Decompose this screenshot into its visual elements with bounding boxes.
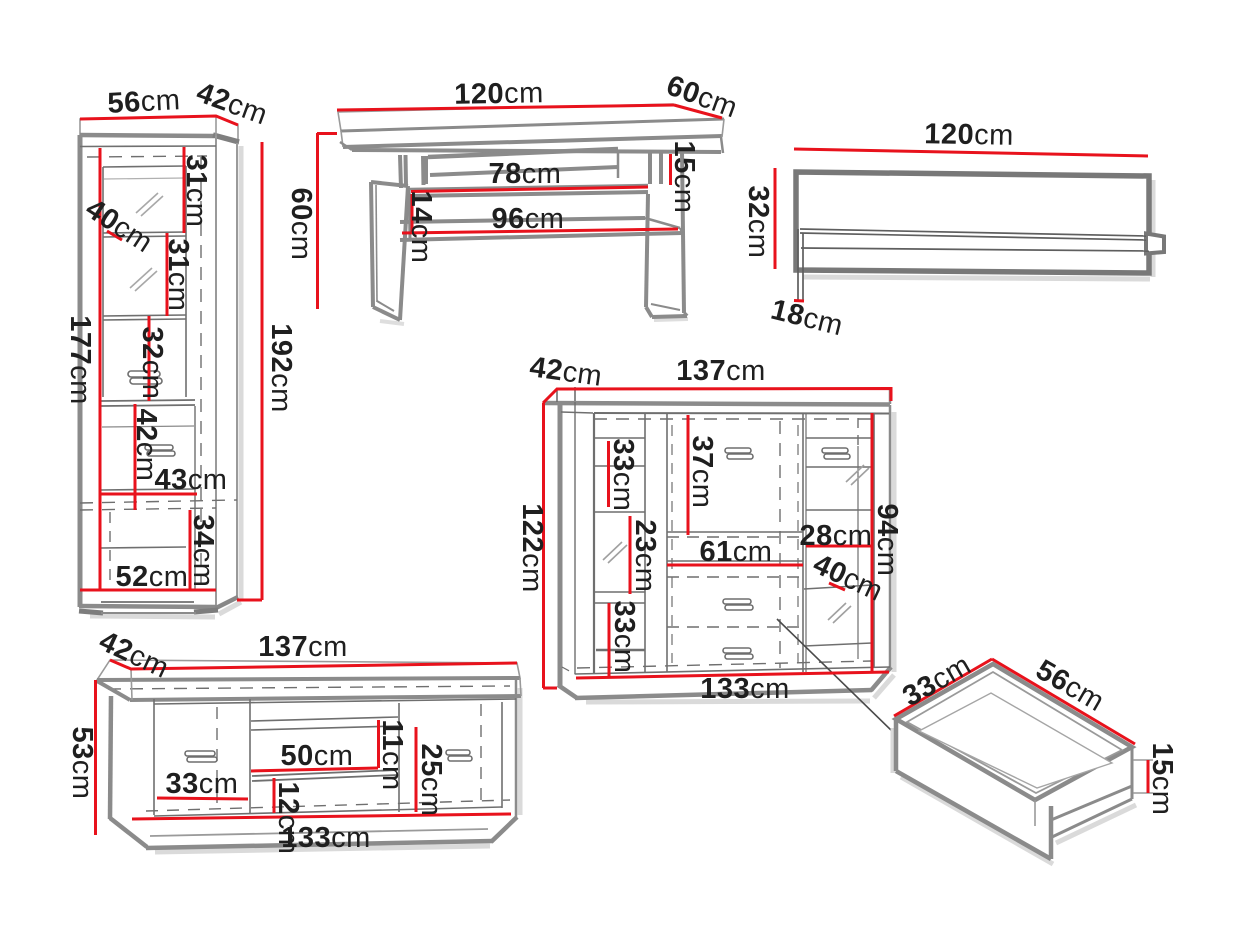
svg-text:120cm: 120cm — [924, 118, 1014, 152]
svg-text:133cm: 133cm — [281, 822, 371, 854]
svg-text:33cm: 33cm — [607, 439, 639, 512]
svg-text:94cm: 94cm — [871, 504, 903, 577]
svg-text:192cm: 192cm — [265, 323, 297, 413]
svg-text:61cm: 61cm — [700, 536, 773, 568]
svg-text:137cm: 137cm — [258, 631, 348, 663]
svg-text:133cm: 133cm — [700, 673, 790, 705]
svg-text:25cm: 25cm — [415, 744, 447, 817]
svg-text:28cm: 28cm — [800, 520, 873, 552]
svg-text:32cm: 32cm — [136, 327, 168, 400]
svg-text:23cm: 23cm — [629, 520, 661, 593]
svg-text:31cm: 31cm — [162, 239, 194, 312]
svg-text:78cm: 78cm — [489, 158, 562, 190]
svg-text:31cm: 31cm — [180, 155, 212, 228]
svg-text:33cm: 33cm — [166, 768, 239, 800]
svg-text:32cm: 32cm — [742, 186, 774, 259]
svg-text:37cm: 37cm — [686, 436, 718, 509]
svg-text:50cm: 50cm — [281, 740, 354, 772]
svg-text:14cm: 14cm — [405, 191, 437, 264]
svg-text:177cm: 177cm — [64, 315, 96, 405]
svg-text:56cm: 56cm — [107, 84, 182, 120]
svg-text:15cm: 15cm — [1146, 743, 1178, 816]
svg-text:43cm: 43cm — [155, 464, 228, 496]
svg-text:122cm: 122cm — [516, 503, 548, 593]
svg-text:137cm: 137cm — [676, 355, 766, 387]
svg-text:33cm: 33cm — [608, 601, 640, 674]
svg-text:60cm: 60cm — [285, 188, 317, 261]
svg-text:15cm: 15cm — [668, 141, 700, 214]
svg-text:52cm: 52cm — [116, 561, 189, 593]
svg-text:96cm: 96cm — [492, 203, 565, 235]
svg-text:34cm: 34cm — [187, 515, 219, 588]
svg-text:53cm: 53cm — [66, 727, 98, 800]
svg-text:120cm: 120cm — [454, 77, 544, 111]
svg-text:11cm: 11cm — [376, 719, 408, 790]
